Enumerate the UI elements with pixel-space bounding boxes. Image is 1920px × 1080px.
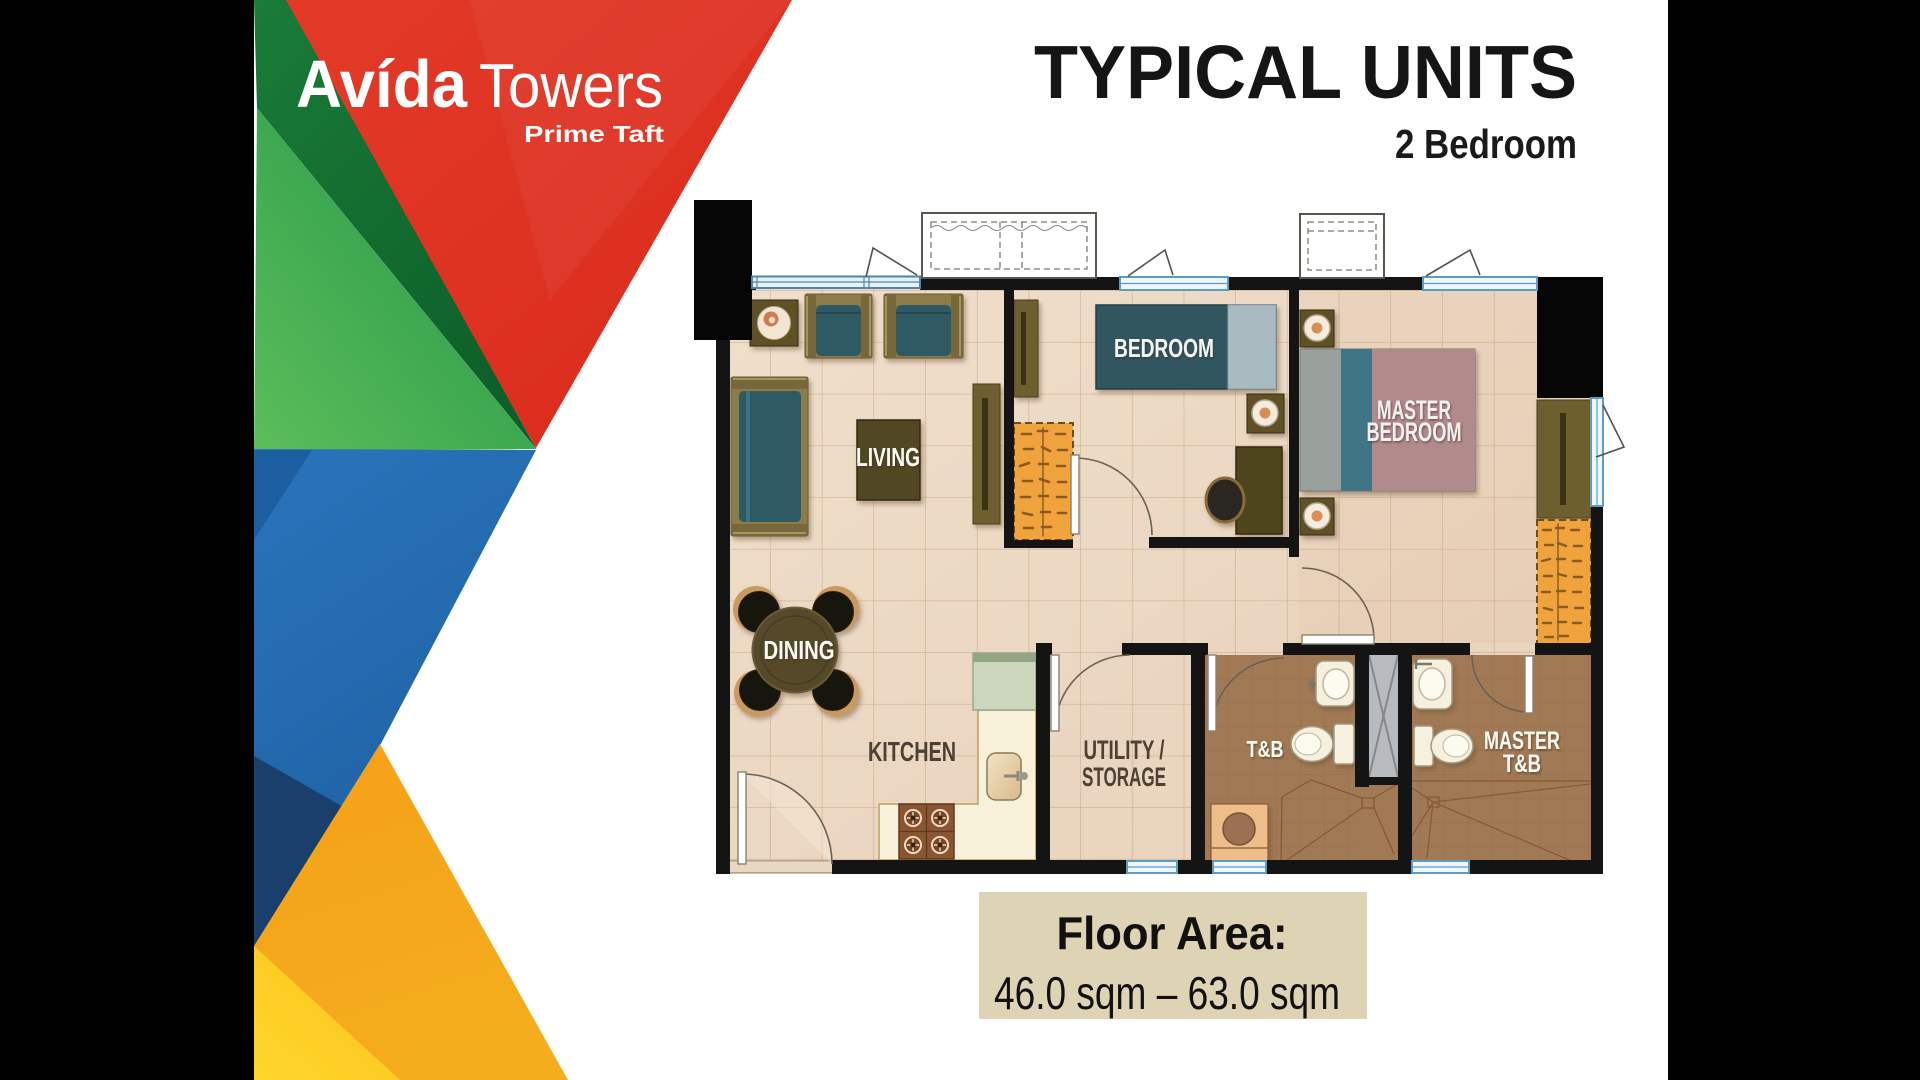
svg-text:Prime Taft: Prime Taft <box>524 121 664 147</box>
svg-text:46.0 sqm – 63.0 sqm: 46.0 sqm – 63.0 sqm <box>994 967 1340 1019</box>
svg-text:T&B: T&B <box>1503 750 1541 778</box>
svg-text:BEDROOM: BEDROOM <box>1367 417 1462 447</box>
svg-text:TYPICAL UNITS: TYPICAL UNITS <box>1034 30 1577 114</box>
svg-text:BEDROOM: BEDROOM <box>1114 333 1214 363</box>
svg-text:STORAGE: STORAGE <box>1082 762 1166 792</box>
svg-text:UTILITY /: UTILITY / <box>1084 735 1165 765</box>
svg-text:2 Bedroom: 2 Bedroom <box>1395 121 1577 167</box>
svg-text:Avída: Avída <box>296 47 468 122</box>
svg-text:KITCHEN: KITCHEN <box>868 736 956 767</box>
svg-text:DINING: DINING <box>764 635 835 665</box>
svg-text:Floor Area:: Floor Area: <box>1057 907 1288 959</box>
svg-text:LIVING: LIVING <box>856 442 920 472</box>
svg-text:T&B: T&B <box>1247 736 1284 762</box>
svg-text:Towers: Towers <box>479 52 663 121</box>
